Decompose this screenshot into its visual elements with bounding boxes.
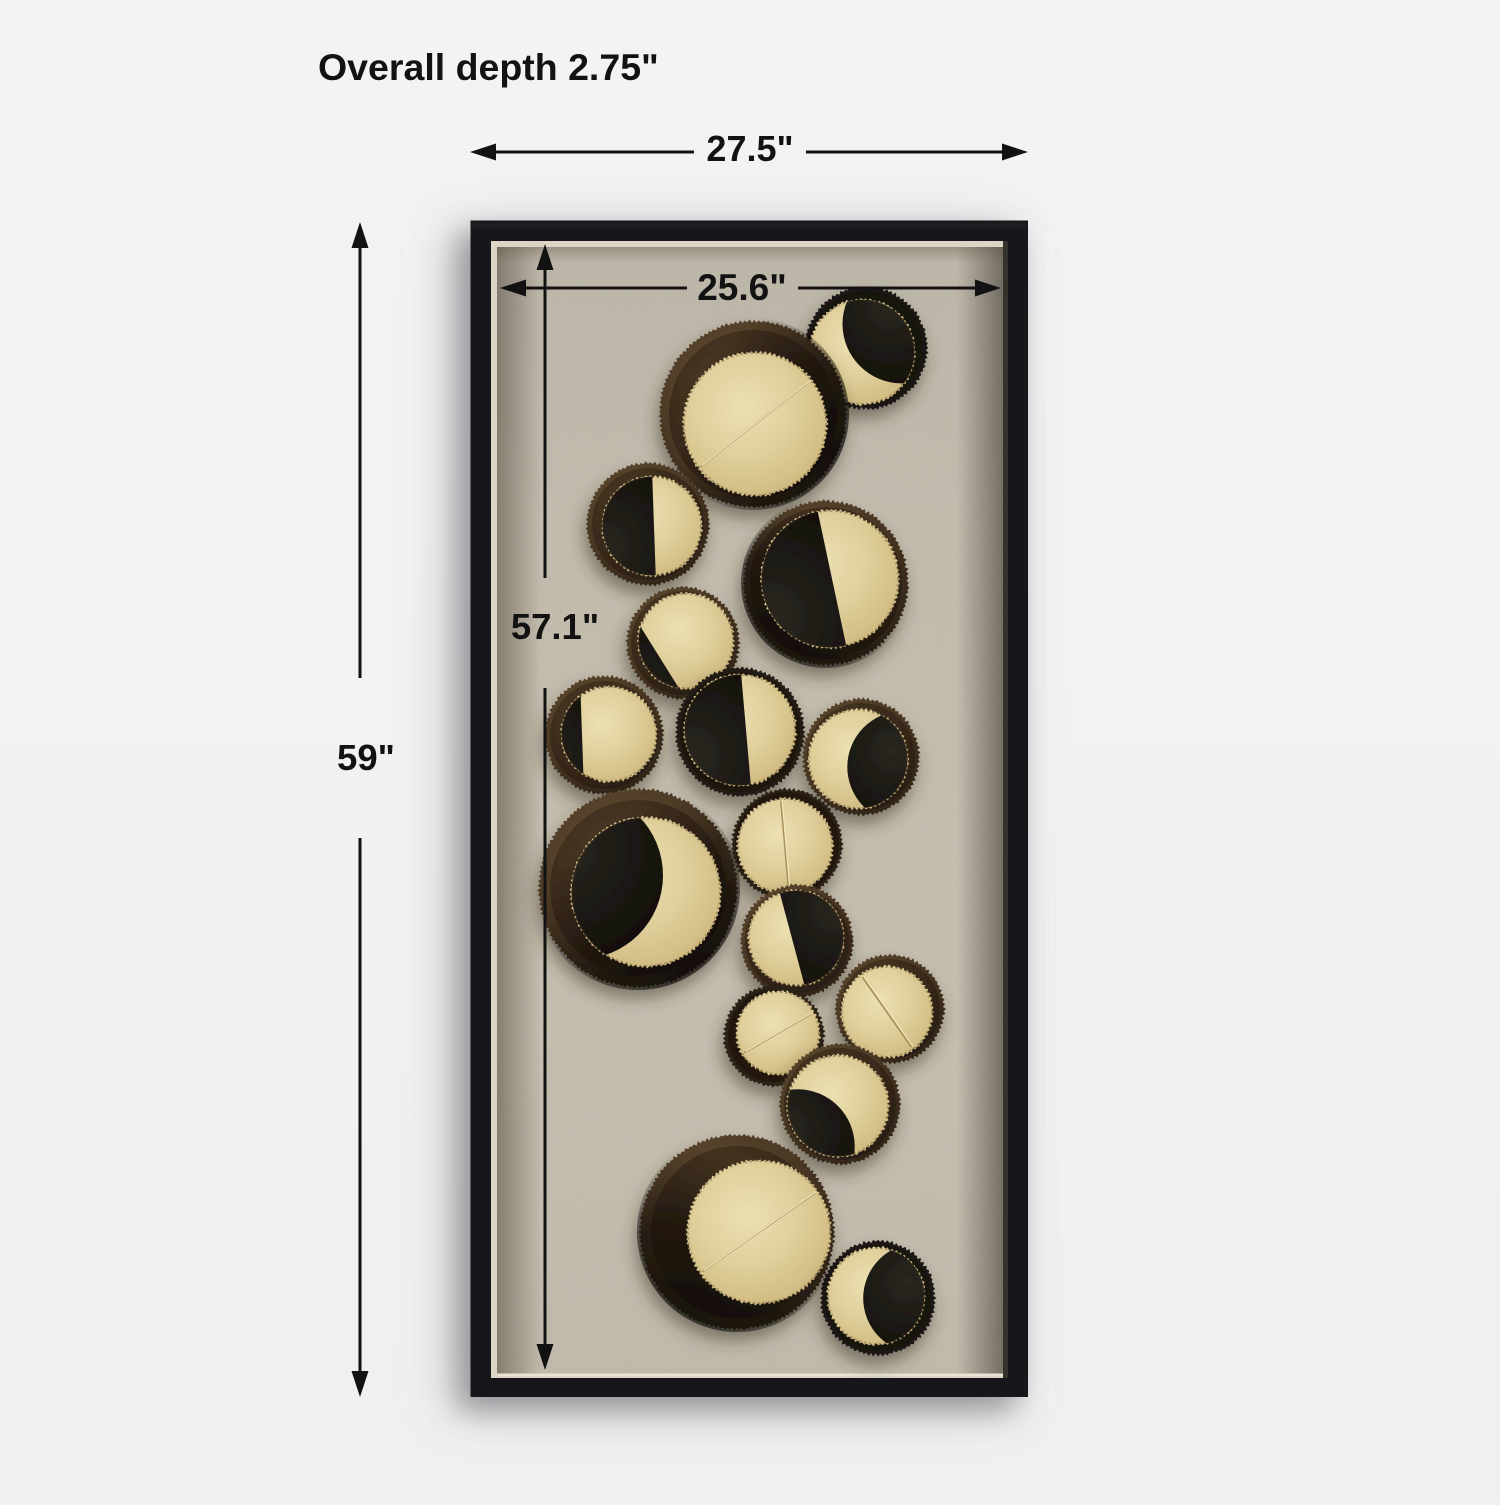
- svg-text:25.6": 25.6": [697, 267, 787, 308]
- svg-text:Overall depth 2.75": Overall depth 2.75": [318, 46, 659, 88]
- svg-text:57.1": 57.1": [511, 606, 599, 647]
- svg-text:59": 59": [337, 737, 395, 778]
- svg-text:27.5": 27.5": [706, 128, 793, 169]
